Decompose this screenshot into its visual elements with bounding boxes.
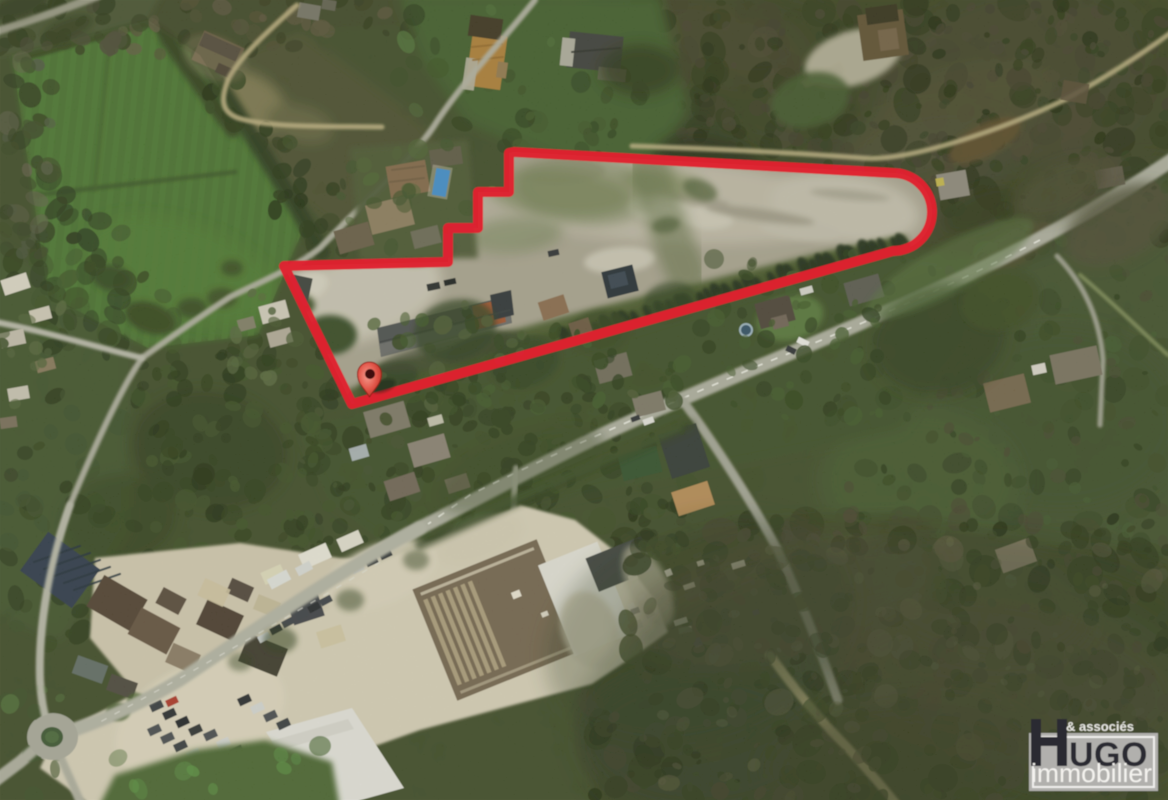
svg-text:immobilier: immobilier [1031,758,1152,788]
svg-text:& associés: & associés [1066,719,1134,734]
